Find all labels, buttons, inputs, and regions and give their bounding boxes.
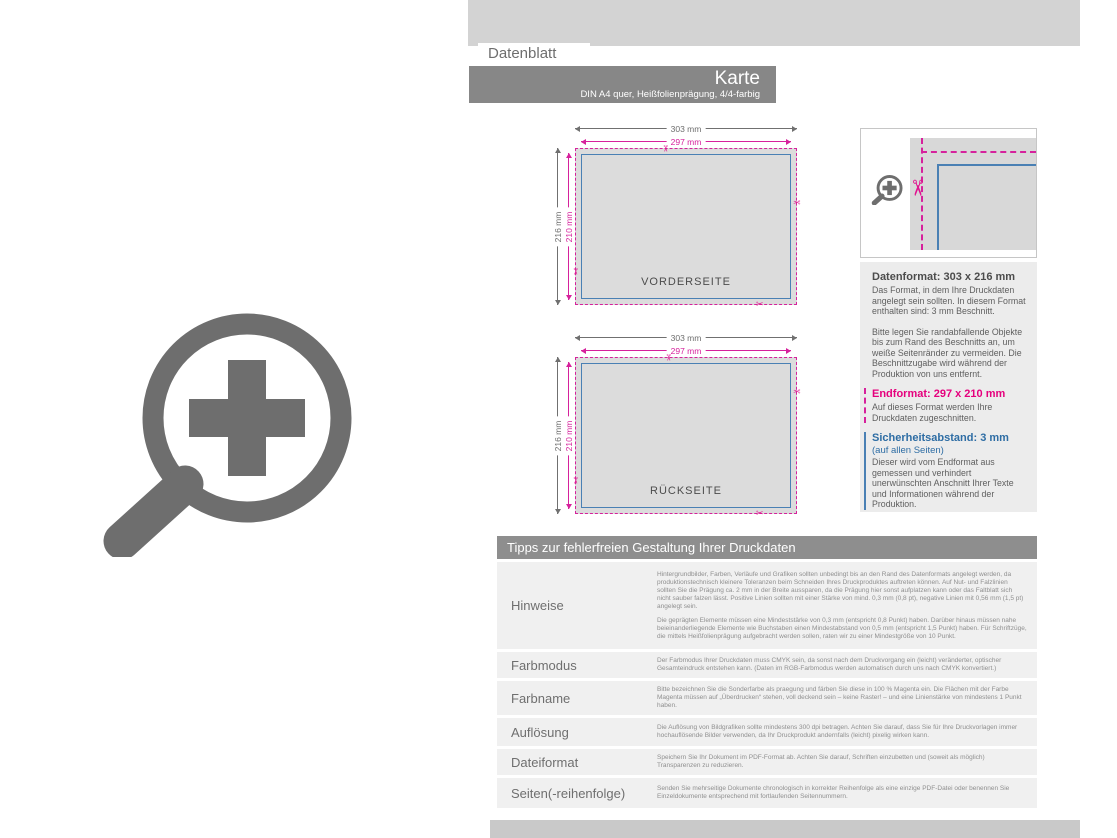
scissors-icon: ✂ xyxy=(793,197,801,206)
footer-bar xyxy=(490,820,1080,838)
front-card-label: VORDERSEITE xyxy=(576,276,796,288)
dim-label: 297 mm xyxy=(667,137,706,147)
datenformat-text: Das Format, in dem Ihre Druckdaten angel… xyxy=(872,285,1027,317)
format-info-panel: Datenformat: 303 x 216 mm Das Format, in… xyxy=(860,262,1037,512)
back-card: ✂ ✂ ✂ ✂ RÜCKSEITE xyxy=(575,357,797,514)
row-paragraph: Hintergrundbilder, Farben, Verläufe und … xyxy=(657,571,1027,611)
row-paragraph: Die geprägten Elemente müssen eine Minde… xyxy=(657,617,1027,641)
table-row: Farbname Bitte bezeichnen Sie die Sonder… xyxy=(497,681,1037,715)
row-label: Dateiformat xyxy=(497,755,657,770)
scissors-icon: ✂ xyxy=(663,354,672,362)
dim-label: 303 mm xyxy=(667,124,706,134)
endformat-heading: Endformat: 297 x 210 mm xyxy=(872,388,1027,401)
row-text: Die Auflösung von Bildgrafiken sollte mi… xyxy=(657,719,1037,745)
row-label: Seiten(-reihenfolge) xyxy=(497,786,657,801)
tips-section: Tipps zur fehlerfreien Gestaltung Ihrer … xyxy=(497,536,1037,808)
table-row: Dateiformat Speichern Sie Ihr Dokument i… xyxy=(497,749,1037,775)
row-text: Der Farbmodus Ihrer Druckdaten muss CMYK… xyxy=(657,652,1037,678)
back-outer-height-dim: 216 mm xyxy=(557,357,558,514)
safety-subheading: (auf allen Seiten) xyxy=(872,445,1027,456)
row-paragraph: Die Auflösung von Bildgrafiken sollte mi… xyxy=(657,724,1027,740)
zoom-plus-icon[interactable] xyxy=(95,312,357,557)
front-inner-width-dim: 297 mm xyxy=(581,141,791,142)
front-outer-height-dim: 216 mm xyxy=(557,148,558,305)
front-card: ✂ ✂ ✂ ✂ VORDERSEITE xyxy=(575,148,797,305)
scissors-icon: ✂ xyxy=(756,300,764,309)
page-subtitle: DIN A4 quer, Heißfolienprägung, 4/4-farb… xyxy=(469,89,760,101)
row-text: Speichern Sie Ihr Dokument im PDF-Format… xyxy=(657,749,1037,775)
top-band xyxy=(468,0,1080,46)
row-label: Auflösung xyxy=(497,725,657,740)
dim-label: 216 mm xyxy=(553,416,563,455)
row-text: Bitte bezeichnen Sie die Sonderfarbe als… xyxy=(657,681,1037,715)
front-diagram: 303 mm 297 mm 216 mm 210 mm ✂ ✂ ✂ ✂ VORD… xyxy=(540,120,810,315)
row-paragraph: Der Farbmodus Ihrer Druckdaten muss CMYK… xyxy=(657,657,1027,673)
bleed-text: Bitte legen Sie randabfallende Objekte b… xyxy=(872,327,1027,380)
back-inner-height-dim: 210 mm xyxy=(568,362,569,509)
page-title: Karte xyxy=(469,68,760,89)
table-row: Hinweise Hintergrundbilder, Farben, Verl… xyxy=(497,562,1037,649)
row-label: Hinweise xyxy=(497,598,657,613)
row-paragraph: Speichern Sie Ihr Dokument im PDF-Format… xyxy=(657,754,1027,770)
scissors-icon: ✂ xyxy=(570,268,579,276)
dim-label: 210 mm xyxy=(564,416,574,455)
scissors-icon: ✂ xyxy=(756,509,764,518)
safety-text: Dieser wird vom Endformat aus gemessen u… xyxy=(872,457,1027,510)
endformat-block: Endformat: 297 x 210 mm Auf dieses Forma… xyxy=(864,388,1027,423)
back-card-label: RÜCKSEITE xyxy=(576,485,796,497)
datenblatt-tab: Datenblatt xyxy=(478,43,590,65)
front-outer-width-dim: 303 mm xyxy=(575,128,797,129)
scissors-icon: ✂ xyxy=(793,386,801,395)
corner-detail-box: ✂ xyxy=(860,128,1037,258)
scissors-icon: ✂ xyxy=(906,179,928,197)
row-label: Farbname xyxy=(497,691,657,706)
row-text: Senden Sie mehrseitige Dokumente chronol… xyxy=(657,780,1037,806)
back-diagram: 303 mm 297 mm 216 mm 210 mm ✂ ✂ ✂ ✂ RÜCK… xyxy=(540,329,810,524)
scissors-icon: ✂ xyxy=(660,145,669,153)
row-paragraph: Bitte bezeichnen Sie die Sonderfarbe als… xyxy=(657,686,1027,710)
dim-label: 303 mm xyxy=(667,333,706,343)
detail-endformat-line xyxy=(937,164,939,250)
dim-label: 210 mm xyxy=(564,207,574,246)
table-row: Farbmodus Der Farbmodus Ihrer Druckdaten… xyxy=(497,652,1037,678)
endformat-text: Auf dieses Format werden Ihre Druckdaten… xyxy=(872,402,1027,423)
tips-section-title: Tipps zur fehlerfreien Gestaltung Ihrer … xyxy=(497,536,1037,559)
back-outer-width-dim: 303 mm xyxy=(575,337,797,338)
table-row: Seiten(-reihenfolge) Senden Sie mehrseit… xyxy=(497,778,1037,808)
datenformat-heading: Datenformat: 303 x 216 mm xyxy=(872,271,1027,284)
table-row: Auflösung Die Auflösung von Bildgrafiken… xyxy=(497,718,1037,746)
safety-block: Sicherheitsabstand: 3 mm (auf allen Seit… xyxy=(864,432,1027,510)
front-inner-height-dim: 210 mm xyxy=(568,153,569,300)
row-text: Hintergrundbilder, Farben, Verläufe und … xyxy=(657,566,1037,646)
row-paragraph: Senden Sie mehrseitige Dokumente chronol… xyxy=(657,785,1027,801)
safety-heading: Sicherheitsabstand: 3 mm xyxy=(872,432,1027,445)
row-label: Farbmodus xyxy=(497,658,657,673)
detail-cut-line xyxy=(921,151,1036,153)
zoom-plus-icon xyxy=(871,175,903,205)
title-bar: Karte DIN A4 quer, Heißfolienprägung, 4/… xyxy=(469,66,776,103)
detail-endformat-line xyxy=(937,164,1036,166)
scissors-icon: ✂ xyxy=(570,477,579,485)
dim-label: 216 mm xyxy=(553,207,563,246)
back-inner-width-dim: 297 mm xyxy=(581,350,791,351)
